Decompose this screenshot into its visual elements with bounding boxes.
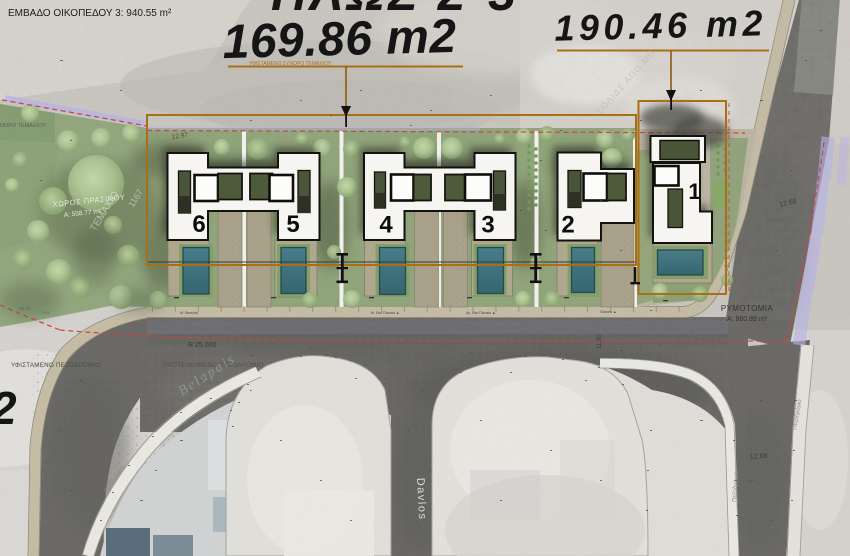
svg-text:12.68: 12.68 bbox=[750, 453, 768, 461]
svg-text:6: 6 bbox=[192, 211, 205, 238]
svg-text:3: 3 bbox=[481, 212, 494, 239]
svg-text:Αγ. Θεο Πλατεία ▲: Αγ. Θεο Πλατεία ▲ bbox=[466, 311, 496, 315]
svg-text:11.00: 11.00 bbox=[597, 334, 603, 349]
svg-text:ΥΦΙΣΤΑΜΕΝΟ ΠΕΖΟΔΡΟΜΙΟ: ΥΦΙΣΤΑΜΕΝΟ ΠΕΖΟΔΡΟΜΙΟ bbox=[11, 362, 101, 369]
svg-text:ΠΛΩΣ 2-3: ΠΛΩΣ 2-3 bbox=[271, 0, 519, 21]
svg-text:4: 4 bbox=[379, 212, 393, 239]
svg-text:5: 5 bbox=[286, 211, 299, 238]
svg-text:Α: 860.89 m²: Α: 860.89 m² bbox=[727, 316, 768, 323]
svg-text:ΕΜΒΑΔΟ ΟΙΚΟΠΕΔΟΥ 3: 940.55 m²: ΕΜΒΑΔΟ ΟΙΚΟΠΕΔΟΥ 3: 940.55 m² bbox=[8, 8, 172, 19]
svg-text:Μ. Θεοτόκη: Μ. Θεοτόκη bbox=[180, 311, 198, 315]
svg-text:190.46 m2: 190.46 m2 bbox=[554, 2, 768, 49]
svg-text:ΡΥΜΟΤΟΜΙΑ: ΡΥΜΟΤΟΜΙΑ bbox=[721, 304, 774, 313]
svg-text:2: 2 bbox=[0, 382, 17, 434]
svg-text:1: 1 bbox=[688, 179, 700, 204]
svg-text:Μ. Θεο Πλατεία ▲: Μ. Θεο Πλατεία ▲ bbox=[371, 311, 400, 315]
svg-text:Davlos: Davlos bbox=[414, 478, 428, 521]
svg-text:R 25.000: R 25.000 bbox=[188, 342, 217, 349]
svg-text:2: 2 bbox=[561, 212, 574, 239]
svg-text:ΝΟΡΟ ΤΕΜΑΧΙΟΥ: ΝΟΡΟ ΤΕΜΑΧΙΟΥ bbox=[0, 123, 46, 129]
svg-text:Πλατεία ▲: Πλατεία ▲ bbox=[600, 310, 616, 314]
